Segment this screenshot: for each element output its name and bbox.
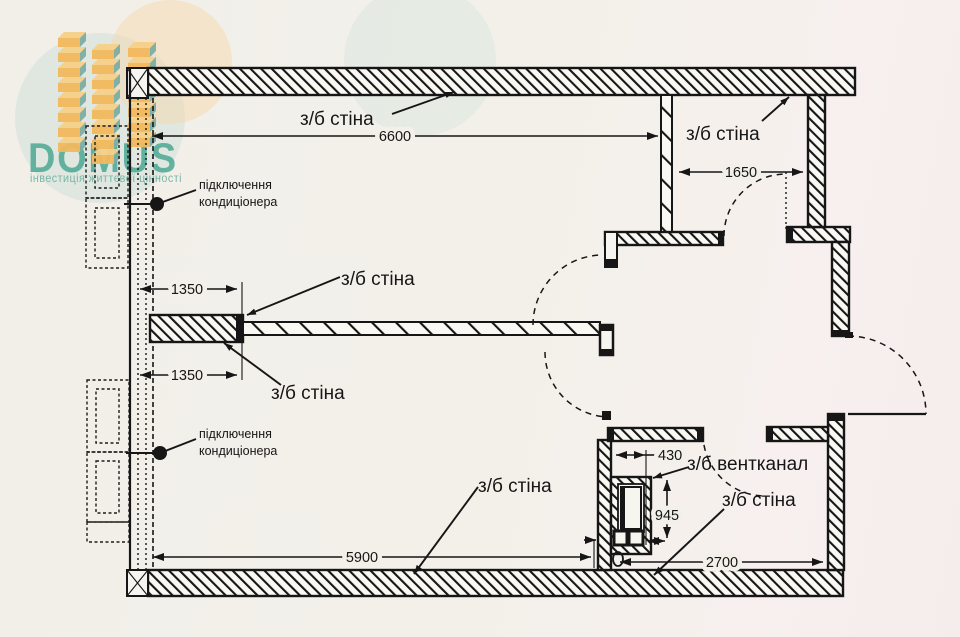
wall-right-lower [828,414,844,570]
wall-top [148,68,855,95]
plan-walls [127,68,855,596]
facade-unit [87,380,129,452]
leader-wall-mid-lower [224,343,281,385]
dim-2700: 2700 [706,555,738,571]
ac-label-2-line-1: підключення [199,427,272,441]
dim-5900: 5900 [346,550,378,566]
ac-label-1-line-1: підключення [199,178,272,192]
wall-right-middle [832,242,849,336]
door-arc-top-right-room [724,174,786,236]
wall-end-cap [697,428,703,441]
door-arc-upper-room [533,255,603,325]
wall-end-cap [718,232,723,245]
dim-6600: 6600 [379,129,411,145]
dim-1350-lower: 1350 [171,368,203,384]
door-arc-right-room [848,336,926,414]
leader-wall-top-right [762,97,789,121]
facade-unit-inner [96,461,119,513]
ac-label-2-line-2: кондиціонера [199,444,277,458]
facade-unit-inner [96,389,119,443]
wall-bath-stub [767,427,828,441]
dim-1650: 1650 [725,165,757,181]
leader-vent [653,467,689,478]
door-hinge-block [845,332,853,338]
vent-shaft-cell [629,531,643,545]
ac-connection-point-2 [126,439,196,460]
wall-label-bottom-left: з/б стіна [478,476,552,497]
wall-end-cap [767,427,773,441]
wall-label-top: з/б стіна [300,109,374,130]
leader-wall-mid-upper [247,277,340,315]
facade-unit [87,522,129,542]
door-hinge-block [602,411,611,420]
wall-right-upper [808,95,825,227]
watermark-circle-orange [108,0,232,124]
text-labels: з/б стіна з/б стіна з/б стіна з/б стіна … [199,109,808,511]
ac-label-1-line-2: кондиціонера [199,195,277,209]
wall-end-cap [600,349,613,355]
wall-vent-left [598,440,611,570]
wall-end-cap [608,428,614,441]
wall-end-cap [600,325,613,331]
wall-vent-top [608,428,703,441]
floor-plan-drawing: DOMUS інвестиція життєвої цінності [0,0,960,637]
wall-right-corner [787,227,850,242]
wall-bottom [148,570,843,596]
vent-duct-label: з/б вентканал [687,454,808,475]
vent-shaft-cell [614,531,627,545]
dim-430: 430 [658,448,682,464]
facade-unit-inner [95,208,119,258]
dim-1350-upper: 1350 [171,282,203,298]
door-arc-lower-room [545,352,610,417]
floorplan-scan: DOMUS інвестиція життєвої цінності [0,0,960,637]
vent-shaft [611,477,651,566]
wall-end-cap [787,227,793,242]
wall-end-cap [828,414,844,421]
wall-label-bottom-right: з/б стіна [722,490,796,511]
wall-label-mid-lower: з/б стіна [271,383,345,404]
leader-wall-bottom-left [414,487,478,574]
domus-logo: DOMUS інвестиція життєвої цінності [15,0,496,203]
ac-point-dot [150,197,164,211]
wall-partition-thick [150,315,243,342]
wall-end-cap [605,259,617,267]
wall-label-mid-upper: з/б стіна [341,269,415,290]
dim-945: 945 [655,508,679,524]
logo-tagline: інвестиція життєвої цінності [30,173,182,185]
wall-interior-vertical [661,95,672,232]
wall-label-top-right: з/б стіна [686,124,760,145]
wall-hall-top [605,232,723,245]
ac-point-dot [153,446,167,460]
wall-partition-thin [243,322,600,335]
facade-unit [87,452,129,522]
